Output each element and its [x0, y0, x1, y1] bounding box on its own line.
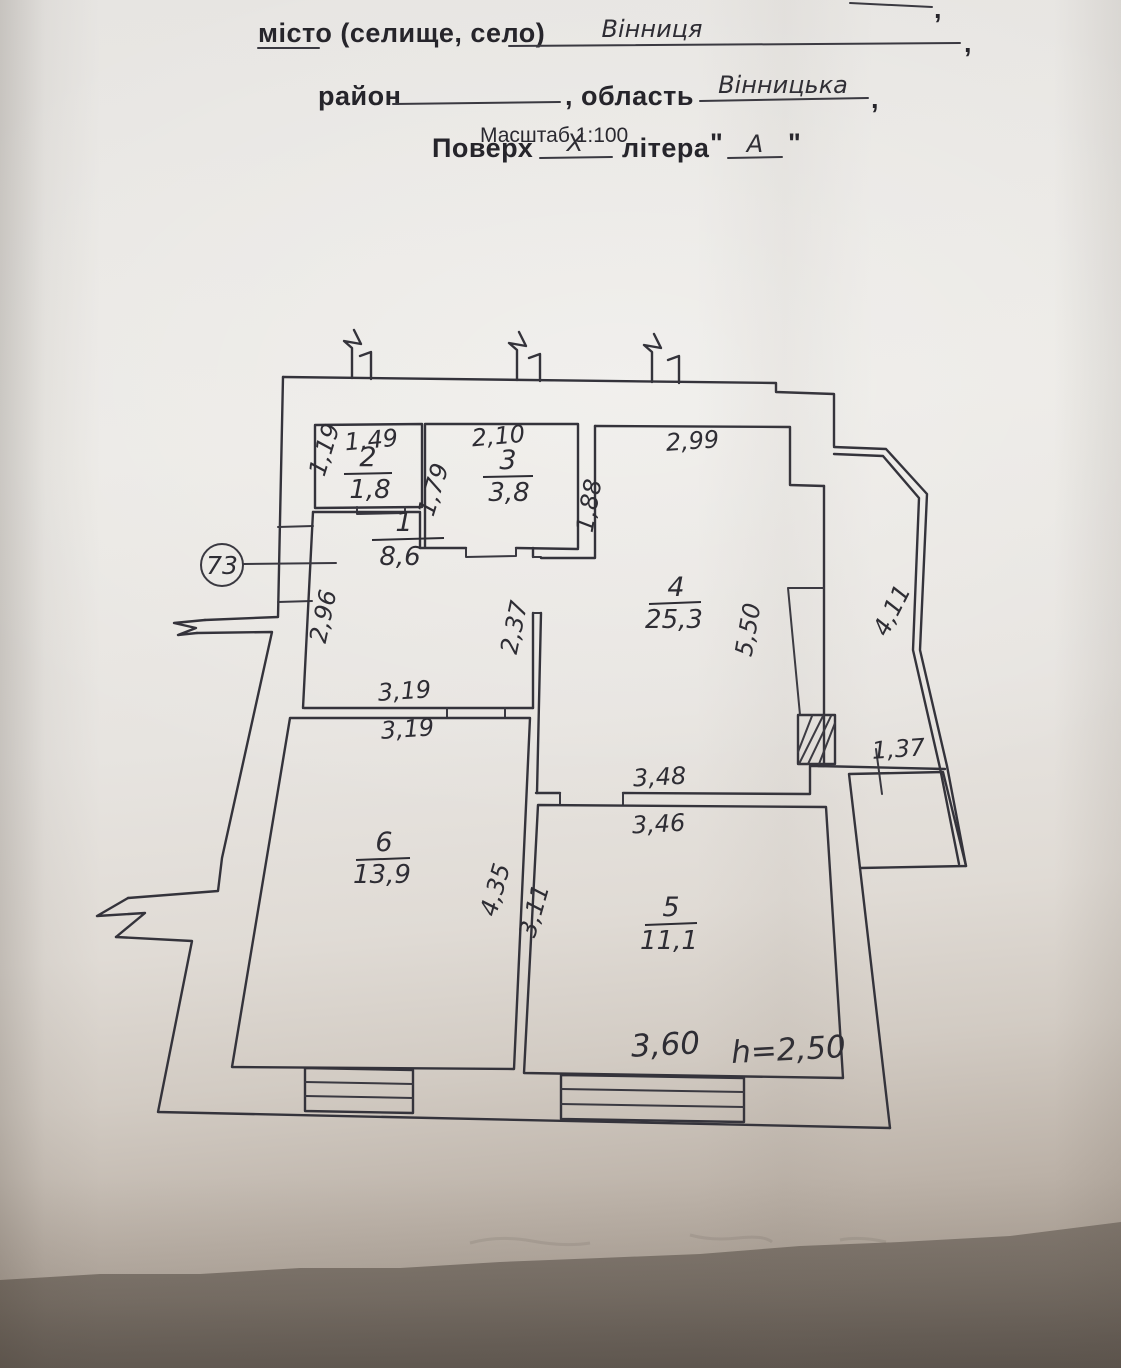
- comma-1: ,: [964, 28, 972, 58]
- floor-value: X: [565, 129, 584, 157]
- comma-2: ,: [871, 84, 879, 114]
- apartment-number-callout: 73: [201, 544, 336, 586]
- window-room-5: [561, 1075, 744, 1122]
- room-1-fraction-line: [372, 538, 444, 540]
- room-2-area: 1,8: [349, 475, 390, 505]
- open-quote: ": [710, 128, 723, 158]
- room-1-number: 1: [395, 507, 412, 538]
- faint-marks: [470, 1235, 886, 1245]
- room-4-to-5-door-ticks: [560, 793, 623, 805]
- apartment-number: 73: [206, 551, 238, 580]
- dim-room6-width: 3,19: [380, 713, 435, 745]
- region-label: , область: [565, 81, 694, 111]
- form-header: , місто (селище, село) Вінниця , район ,…: [258, 0, 972, 163]
- apartment-leader-line: [244, 563, 336, 564]
- room-5-number: 5: [662, 892, 679, 923]
- left-wall-upper: [205, 377, 283, 620]
- room-4-area: 25,3: [645, 605, 703, 635]
- balcony-section-top-line: [818, 766, 945, 769]
- window-room-6: [305, 1068, 413, 1113]
- dim-room5-bottom: 3,60: [630, 1025, 701, 1065]
- room-6-number: 6: [375, 827, 392, 858]
- floor-plan-document: , місто (селище, село) Вінниця , район ,…: [0, 0, 1121, 1368]
- faint-mark-2: [690, 1235, 772, 1242]
- region-value: Вінницька: [718, 71, 848, 99]
- balcony-window-block: [788, 588, 824, 715]
- vent-shaft-hatch-icon: [798, 716, 835, 764]
- dim-room4-bottom: 3,48: [632, 762, 687, 793]
- wall-break-left-lower-icon: [97, 898, 145, 937]
- city-blank-line: [509, 43, 960, 46]
- close-quote: ": [788, 128, 801, 158]
- room-4-fraction-line: [649, 602, 701, 604]
- wall-break-top-3-icon: [644, 334, 679, 383]
- top-partial-comma: ,: [934, 0, 942, 24]
- dim-balcony-small: 1,37: [871, 733, 927, 765]
- room-1-to-4-door-ticks: [533, 557, 541, 613]
- dim-room3-top: 2,10: [470, 420, 526, 453]
- dim-room4-right: 5,50: [730, 601, 767, 658]
- letter-value: А: [745, 130, 763, 158]
- room-3-bottom-wall: [420, 548, 578, 549]
- dim-room2-top: 1,49: [343, 424, 399, 457]
- room-3-door: [466, 548, 516, 557]
- balcony-outline: [818, 447, 966, 868]
- room-1-to-6-door-ticks: [447, 708, 505, 718]
- top-partial-underline: [850, 3, 932, 7]
- dim-room4-top: 2,99: [665, 425, 720, 457]
- district-label: район: [318, 81, 401, 111]
- dim-room5-left: 3,11: [513, 881, 555, 940]
- window-frame: [305, 1068, 413, 1113]
- window-panes: [561, 1089, 744, 1107]
- city-label: місто (селище, село): [258, 18, 545, 48]
- faint-mark-3: [840, 1238, 886, 1242]
- wall-break-top-1-icon: [344, 330, 371, 379]
- dim-hall-width: 3,19: [377, 675, 432, 707]
- window-frame: [561, 1075, 744, 1122]
- letter-label: літера: [622, 133, 710, 163]
- room-3-area: 3,8: [488, 478, 529, 508]
- district-blank-line: [393, 102, 560, 104]
- room-1-area: 8,6: [379, 542, 420, 572]
- dim-hall-right: 2,37: [495, 598, 534, 657]
- vent-shaft-hatched: [798, 715, 835, 764]
- faint-mark-1: [470, 1238, 590, 1244]
- balcony-small-section: [849, 772, 966, 868]
- room-6-area: 13,9: [353, 860, 411, 890]
- dim-room3-left: 1,79: [412, 460, 454, 519]
- right-wall-lower: [860, 868, 890, 1128]
- city-value: Вінниця: [602, 15, 703, 43]
- window-panes: [305, 1082, 413, 1098]
- dim-room4-left: 1,88: [571, 477, 608, 534]
- room-4-number: 4: [667, 572, 684, 603]
- room-3-fraction-line: [483, 476, 533, 477]
- dim-room5-top: 3,46: [631, 809, 686, 840]
- room-5-area: 11,1: [640, 926, 698, 956]
- ceiling-height: h=2,50: [730, 1029, 846, 1071]
- floor-blank-line: [540, 157, 612, 158]
- room-4-left-wall: [537, 613, 541, 793]
- dim-room2-left: 1,19: [303, 420, 345, 479]
- dim-balcony-side: 4,11: [867, 580, 916, 640]
- floor-label: Поверх: [432, 133, 533, 163]
- wall-break-top-2-icon: [509, 332, 540, 381]
- dim-room6-right: 4,35: [474, 860, 516, 919]
- room-2-fraction-line: [344, 473, 392, 474]
- left-wall-mid: [128, 632, 272, 898]
- room-5-fraction-line: [645, 923, 697, 925]
